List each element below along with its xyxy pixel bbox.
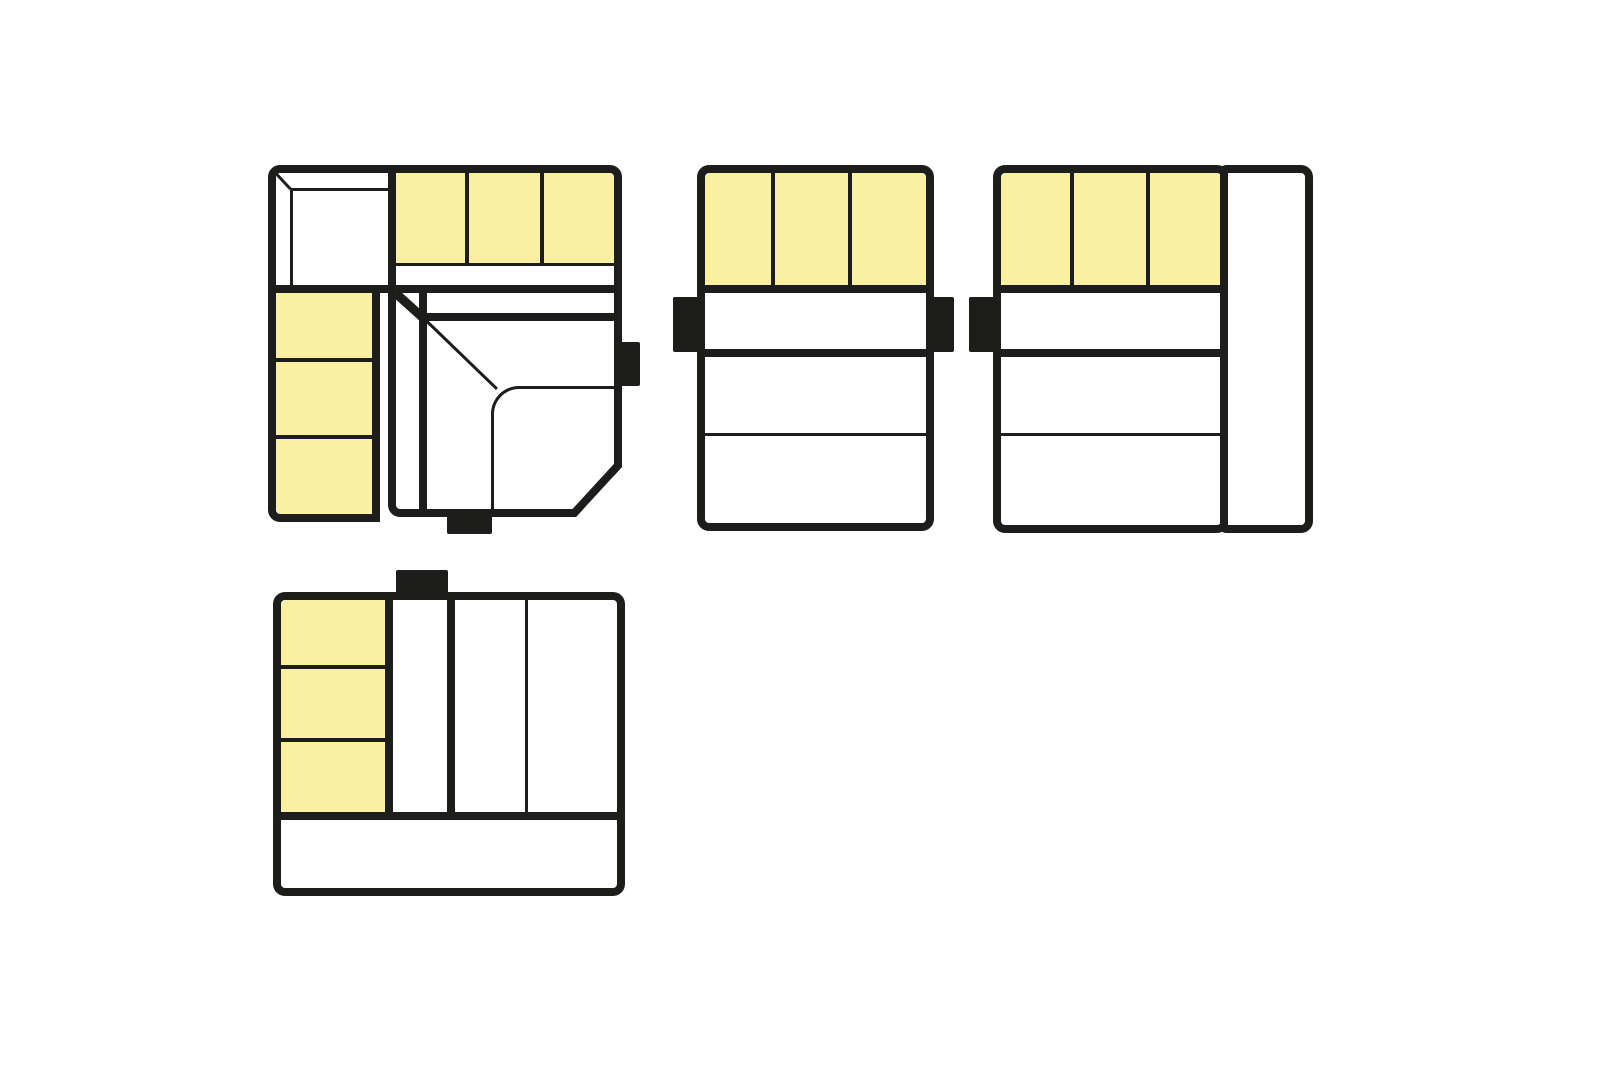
cushion-divider	[1146, 173, 1150, 285]
highlighted-cushion-block	[1001, 173, 1221, 285]
side-cushion-column-module[interactable]	[268, 285, 380, 522]
config-straight-sofa-side-element[interactable]	[969, 165, 1313, 533]
side-element-module	[1220, 165, 1313, 533]
back-cushion-row-module[interactable]	[697, 165, 934, 357]
config-rotated-sofa[interactable]	[273, 570, 625, 896]
cushion-divider	[465, 173, 469, 263]
backrest-strip-line	[419, 293, 427, 509]
corner-back-inner-edge-vertical	[290, 188, 293, 285]
seat-area-module	[697, 349, 934, 531]
seat-seam-line	[424, 318, 498, 390]
cushion-divider	[848, 173, 852, 285]
cushion-divider	[281, 738, 385, 742]
connector-tab-bottom	[447, 514, 492, 534]
seat-section-divider	[705, 433, 926, 436]
back-cushion-row-module[interactable]	[993, 165, 1229, 357]
cushion-divider	[276, 435, 372, 439]
cushion-block-edge-line	[1001, 285, 1221, 293]
highlighted-cushion-block	[276, 293, 372, 514]
corner-seat-cushion-outline	[491, 386, 617, 512]
corner-back-inner-edge-horizontal	[290, 188, 388, 191]
seat-section-divider	[525, 600, 528, 812]
corner-seat-element	[388, 285, 622, 517]
seat-area-module	[993, 349, 1229, 533]
highlighted-cushion-block	[396, 173, 614, 263]
sofa-configuration-diagram	[0, 0, 1600, 1080]
corner-back-miter-line	[275, 172, 292, 189]
highlighted-cushion-block	[705, 173, 926, 285]
seat-band-edge-line	[447, 600, 455, 812]
cushion-divider	[276, 358, 372, 362]
cushion-divider	[540, 173, 544, 263]
corner-back-element	[268, 165, 396, 293]
cushion-divider	[1070, 173, 1074, 285]
config-straight-sofa[interactable]	[673, 165, 954, 531]
backrest-band-line	[427, 313, 614, 321]
cushion-column-edge-line	[385, 600, 393, 812]
cushion-block-edge-line	[705, 285, 926, 293]
config-corner-sofa[interactable]	[268, 165, 640, 534]
cushion-divider	[281, 665, 385, 669]
seat-section-divider	[1001, 433, 1221, 436]
rotated-sofa-main-module[interactable]	[273, 592, 625, 820]
cushion-divider	[771, 173, 775, 285]
back-cushion-row-module[interactable]	[388, 165, 622, 293]
cushion-block-edge-line	[396, 263, 614, 266]
highlighted-cushion-block	[281, 600, 385, 812]
back-band-module	[273, 812, 625, 896]
